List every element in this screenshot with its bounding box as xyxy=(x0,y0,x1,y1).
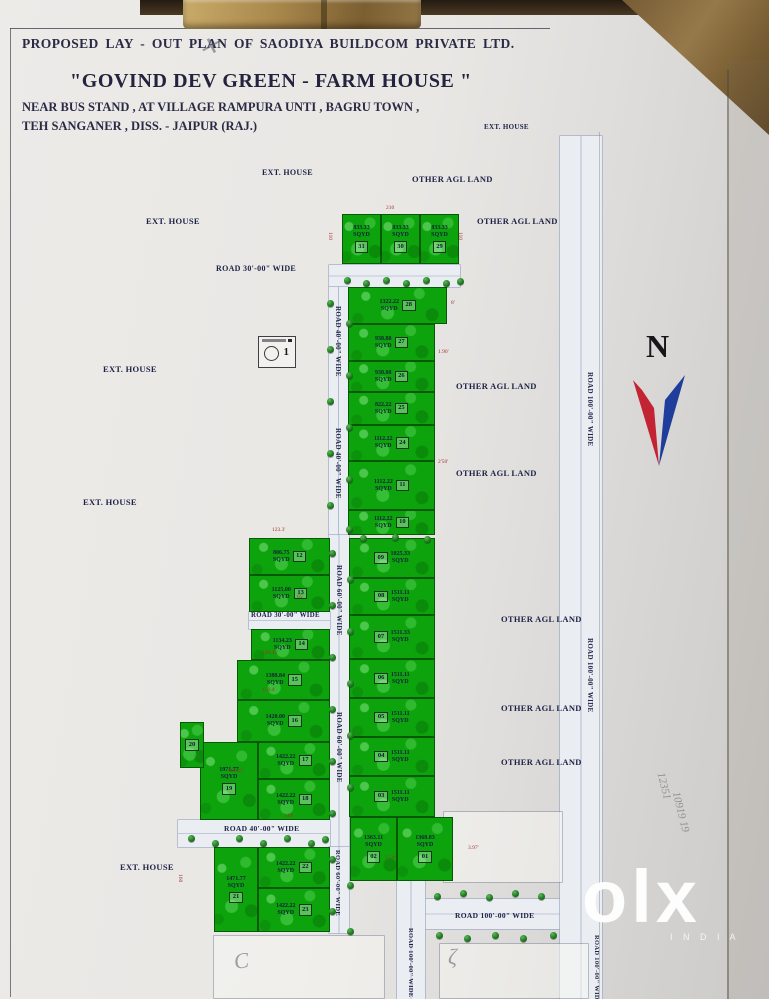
map-label: ROAD 100'-00" WIDE xyxy=(455,911,534,920)
plot-16: 1420.00SQYD16 xyxy=(237,700,330,742)
dimension-label: 210 xyxy=(386,205,394,211)
tree-icon xyxy=(457,278,464,285)
tree-icon xyxy=(347,628,354,635)
plot-07: 1511.33SQYD07 xyxy=(349,615,435,659)
tree-icon xyxy=(520,935,527,942)
tree-icon xyxy=(550,932,557,939)
plot-number: 18 xyxy=(299,794,313,806)
plot-area-label: 1112.22SQYD xyxy=(374,479,393,493)
tree-icon xyxy=(392,534,399,541)
tree-icon xyxy=(322,836,329,843)
plot-area-label: 1322.22SQYD xyxy=(380,299,400,313)
tree-icon xyxy=(363,280,370,287)
plot-number: 09 xyxy=(374,552,388,564)
tree-icon xyxy=(284,835,291,842)
tree-icon xyxy=(327,346,334,353)
plot-03: 1511.11SQYD03 xyxy=(349,776,435,817)
plot-09: 1025.33SQYD09 xyxy=(349,538,435,578)
dimension-label: 110 xyxy=(457,232,463,240)
tree-icon xyxy=(346,476,353,483)
tree-icon xyxy=(464,935,471,942)
plot-15: 1388.84SQYD15 xyxy=(237,660,330,700)
plot-area-label: 1511.11SQYD xyxy=(391,790,410,804)
plot-area-label: 1025.33SQYD xyxy=(391,551,411,565)
plot-number: 28 xyxy=(402,300,416,312)
tree-icon xyxy=(346,372,353,379)
stamp-mark: 1 xyxy=(284,346,290,358)
map-label: OTHER AGL LAND xyxy=(501,757,582,767)
plot-01: 1360.83SQYD01 xyxy=(397,817,453,881)
plot-number: 25 xyxy=(395,403,409,415)
tree-icon xyxy=(347,882,354,889)
tree-icon xyxy=(424,536,431,543)
tree-icon xyxy=(512,890,519,897)
plot-area-label: 1422.22SQYD xyxy=(276,903,296,917)
plot-26: 938.88SQYD26 xyxy=(348,361,435,392)
plot-06: 1511.11SQYD06 xyxy=(349,659,435,698)
tree-icon xyxy=(346,526,353,533)
dimension-label: 1.90' xyxy=(438,349,449,355)
map-label: OTHER AGL LAND xyxy=(501,614,582,624)
plot-number: 04 xyxy=(374,751,388,763)
plot-number: 17 xyxy=(299,755,313,767)
plot-number: 03 xyxy=(374,791,388,803)
dimension-label: 65' xyxy=(297,594,304,600)
plan-paper: PROPOSED LAY - OUT PLAN OF SAODIYA BUILD… xyxy=(0,0,769,999)
tree-icon xyxy=(327,502,334,509)
binder-clip xyxy=(183,0,421,29)
map-label: ROAD 60'-00" WIDE xyxy=(335,565,343,636)
plot-number: 02 xyxy=(367,851,381,863)
plot-area-label: 833.33SQYD xyxy=(431,225,448,239)
map-label: ROAD 40'-00" WIDE xyxy=(224,824,299,833)
map-label: ROAD 100'-00" WIDE xyxy=(586,638,594,713)
map-label: ROAD 30'-00" WIDE xyxy=(251,612,320,619)
tree-icon xyxy=(346,320,353,327)
plot-area-label: 1471.77SQYD xyxy=(226,876,246,890)
tree-icon xyxy=(260,840,267,847)
plot-number: 12 xyxy=(293,551,307,563)
dimension-label: 150.4' xyxy=(262,687,275,693)
plot-number: 05 xyxy=(374,712,388,724)
dimension-label: 160 xyxy=(177,874,183,882)
dimension-label: 3.97' xyxy=(468,845,479,851)
tree-icon xyxy=(327,450,334,457)
tree-icon xyxy=(329,654,336,661)
handwritten-mark: 10919 19 xyxy=(670,791,692,834)
dimension-label: 2'50' xyxy=(438,459,448,465)
plot-22: 1422.22SQYD22 xyxy=(258,847,330,888)
plot-number: 07 xyxy=(374,631,388,643)
map-label: EXT. HOUSE xyxy=(484,123,529,131)
tree-icon xyxy=(327,398,334,405)
plot-17: 1422.22SQYD17 xyxy=(258,742,330,779)
map-label: OTHER AGL LAND xyxy=(456,468,537,478)
plot-area-label: 1511.11SQYD xyxy=(391,711,410,725)
tree-icon xyxy=(347,680,354,687)
plot-number: 19 xyxy=(222,783,236,795)
map-label: OTHER AGL LAND xyxy=(501,703,582,713)
map-label: OTHER AGL LAND xyxy=(456,381,537,391)
tree-icon xyxy=(347,576,354,583)
plot-number: 24 xyxy=(396,437,410,449)
tree-icon xyxy=(403,280,410,287)
tree-icon xyxy=(329,550,336,557)
map-label: EXT. HOUSE xyxy=(103,364,157,374)
plot-area-label: 1388.84SQYD xyxy=(266,673,286,687)
tree-icon xyxy=(329,810,336,817)
plot-number: 01 xyxy=(418,851,432,863)
plot-27: 938.88SQYD27 xyxy=(348,324,435,361)
map-label: ROAD 60'-00" WIDE xyxy=(335,712,343,783)
plot-05: 1511.11SQYD05 xyxy=(349,698,435,737)
plot-area-label: 1420.00SQYD xyxy=(266,714,286,728)
plot-area-label: 1125.00SQYD xyxy=(272,587,291,601)
photo-of-layout-plan: PROPOSED LAY - OUT PLAN OF SAODIYA BUILD… xyxy=(0,0,769,999)
tree-icon xyxy=(236,835,243,842)
map-label: EXT. HOUSE xyxy=(146,216,200,226)
plot-29: 833.33SQYD29 xyxy=(420,214,459,264)
plot-19: 1971.77SQYD19 xyxy=(200,742,258,820)
plot-area-label: 806.75SQYD xyxy=(273,550,290,564)
tree-icon xyxy=(538,893,545,900)
plot-area-label: 1112.22SQYD xyxy=(374,436,393,450)
plot-area-label: 1422.22SQYD xyxy=(276,861,296,875)
handwritten-mark: C xyxy=(232,947,250,975)
stamp-box: 1 xyxy=(258,336,296,368)
plot-number: 31 xyxy=(355,241,369,253)
dimension-label: 149.45' xyxy=(262,650,278,656)
map-label: ROAD 30'-00" WIDE xyxy=(216,264,296,273)
plot-area-label: 1112.22SQYD xyxy=(374,516,393,530)
plot-area-label: 1360.83SQYD xyxy=(415,835,435,849)
plot-area-label: 1511.11SQYD xyxy=(391,590,410,604)
plot-31: 833.33SQYD31 xyxy=(342,214,381,264)
tree-icon xyxy=(460,890,467,897)
north-label: N xyxy=(646,328,669,365)
plot-number: 21 xyxy=(229,892,243,904)
olx-logo: olx xyxy=(582,860,740,934)
map-label: OTHER AGL LAND xyxy=(412,174,493,184)
plot-13: 1125.00SQYD13 xyxy=(249,575,330,612)
map-label: EXT. HOUSE xyxy=(83,497,137,507)
tree-icon xyxy=(486,894,493,901)
plot-number: 10 xyxy=(396,517,410,529)
plot-area-label: 1511.11SQYD xyxy=(391,750,410,764)
plot-number: 27 xyxy=(395,337,409,349)
map-label: ROAD 100'-00" WIDE xyxy=(407,928,414,998)
plot-area-label: 1422.22SQYD xyxy=(276,793,296,807)
tree-icon xyxy=(436,932,443,939)
tree-icon xyxy=(383,277,390,284)
plot-area-label: 1511.33SQYD xyxy=(391,630,410,644)
plot-23: 1422.22SQYD23 xyxy=(258,888,330,932)
map-label: OTHER AGL LAND xyxy=(477,216,558,226)
plot-area-label: 1363.11SQYD xyxy=(364,835,383,849)
dimension-label: 123.3' xyxy=(272,527,285,533)
dimension-label: 110 xyxy=(327,232,333,240)
plot-20: 20 xyxy=(180,722,204,768)
stamp-circle-icon xyxy=(264,346,279,361)
plot-number: 16 xyxy=(288,715,302,727)
tree-icon xyxy=(347,784,354,791)
plot-number: 06 xyxy=(374,673,388,685)
handwritten-mark: ζ xyxy=(448,944,457,970)
dimension-label: 1.50' xyxy=(385,855,396,861)
tree-icon xyxy=(492,932,499,939)
plot-25: 822.22SQYD25 xyxy=(348,392,435,425)
plot-area-label: 938.88SQYD xyxy=(375,370,392,384)
plot-number: 14 xyxy=(295,639,309,651)
plot-number: 11 xyxy=(396,480,409,492)
plot-number: 30 xyxy=(394,241,408,253)
plot-12: 806.75SQYD12 xyxy=(249,538,330,575)
plot-area-label: 833.33SQYD xyxy=(353,225,370,239)
plot-04: 1511.11SQYD04 xyxy=(349,737,435,776)
dimension-label: 140' xyxy=(284,813,293,819)
plot-number: 20 xyxy=(185,739,199,751)
plot-number: 08 xyxy=(374,591,388,603)
plot-number: 26 xyxy=(395,371,409,383)
plot-map: 833.33SQYD31833.33SQYD30833.33SQYD291322… xyxy=(0,0,769,999)
tree-icon xyxy=(344,277,351,284)
vacant-parcel-outline xyxy=(440,944,588,998)
plot-area-label: 833.33SQYD xyxy=(392,225,409,239)
tree-icon xyxy=(360,535,367,542)
tree-icon xyxy=(308,840,315,847)
map-label: ROAD 40'-00" WIDE xyxy=(334,306,342,377)
olx-watermark: olx I N D I A xyxy=(582,860,740,942)
paper-edge-shadow xyxy=(729,60,769,999)
tree-icon xyxy=(327,300,334,307)
plot-number: 22 xyxy=(299,862,313,874)
plot-number: 15 xyxy=(288,674,302,686)
map-label: ROAD 40'-00" WIDE xyxy=(334,428,342,499)
vacant-parcel-outline xyxy=(444,812,562,882)
plot-18: 1422.22SQYD18 xyxy=(258,779,330,820)
north-arrow-icon xyxy=(630,372,688,470)
plot-30: 833.33SQYD30 xyxy=(381,214,420,264)
plot-area-label: 1511.11SQYD xyxy=(391,672,410,686)
map-label: EXT. HOUSE xyxy=(120,862,174,872)
handwritten-mark: ✕ xyxy=(197,30,222,62)
plot-02: 1363.11SQYD02 xyxy=(350,817,397,881)
plot-number: 23 xyxy=(299,904,313,916)
plot-11: 1112.22SQYD11 xyxy=(348,461,435,510)
tree-icon xyxy=(423,277,430,284)
plot-10: 1112.22SQYD10 xyxy=(348,510,435,535)
plot-28: 1322.22SQYD28 xyxy=(348,287,447,324)
dimension-label: 202.11' xyxy=(228,768,244,774)
plot-area-label: 938.88SQYD xyxy=(375,336,392,350)
stamp-header-line xyxy=(262,339,286,342)
tree-icon xyxy=(212,840,219,847)
tree-icon xyxy=(443,280,450,287)
plot-area-label: 1422.22SQYD xyxy=(276,754,296,768)
tree-icon xyxy=(188,835,195,842)
plot-area-label: 822.22SQYD xyxy=(375,402,392,416)
plot-24: 1112.22SQYD24 xyxy=(348,425,435,461)
map-label: EXT. HOUSE xyxy=(262,168,313,177)
plot-number: 29 xyxy=(433,241,447,253)
map-label: ROAD 60'-00" WIDE xyxy=(334,850,341,916)
tree-icon xyxy=(346,424,353,431)
tree-icon xyxy=(347,928,354,935)
dimension-label: 8' xyxy=(451,300,455,306)
plot-21: 1471.77SQYD21 xyxy=(214,847,258,932)
map-label: ROAD 100'-00" WIDE xyxy=(586,372,594,447)
tree-icon xyxy=(347,732,354,739)
plot-08: 1511.11SQYD08 xyxy=(349,578,435,615)
tree-icon xyxy=(434,893,441,900)
